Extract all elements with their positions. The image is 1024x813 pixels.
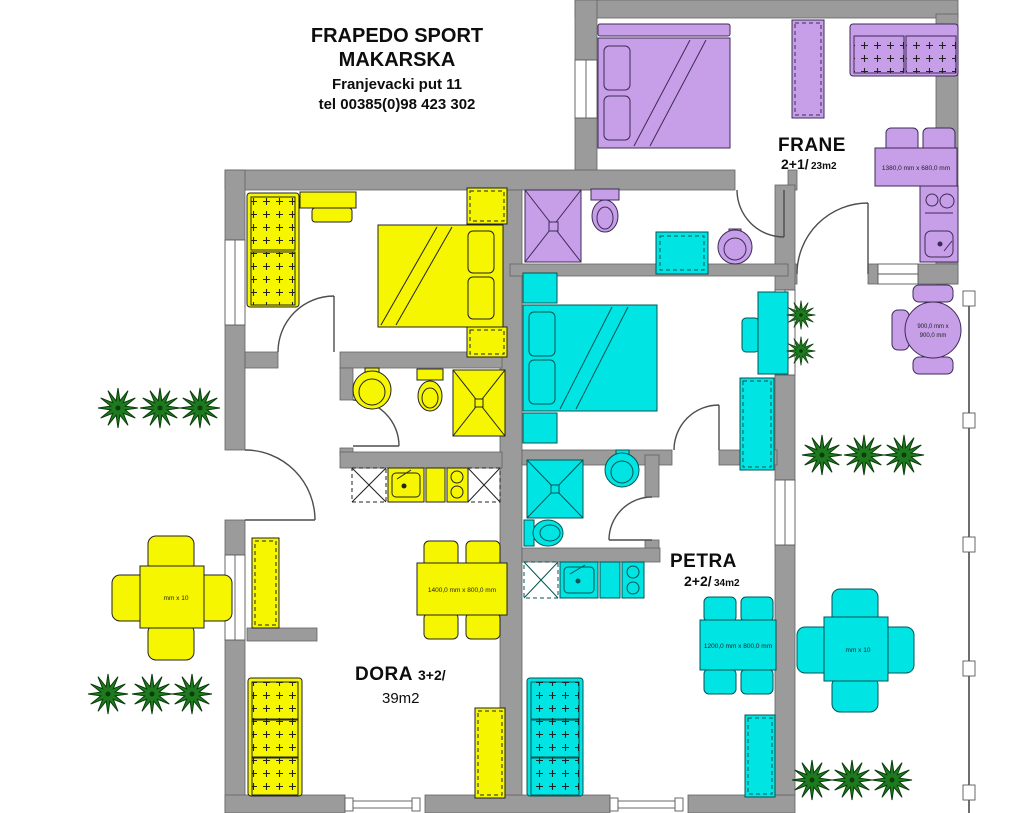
fence <box>963 291 975 813</box>
petra-label: PETRA <box>670 551 737 572</box>
bathroom-sink <box>353 368 391 409</box>
petra-area: 34m2 <box>714 578 740 589</box>
frane-area: 23m2 <box>811 161 837 172</box>
title-line3: Franjevacki put 11 <box>332 76 462 93</box>
wall-shelf <box>247 628 317 641</box>
wardrobe <box>252 538 279 628</box>
sofa <box>850 24 958 76</box>
frane-table-dimension: 1380,0 mm x 680,0 mm <box>882 165 950 172</box>
shower <box>453 370 505 436</box>
tree-icon <box>132 674 172 714</box>
double-bed <box>523 305 657 411</box>
wardrobe <box>475 708 505 798</box>
round-table-dimension-2: 900,0 mm <box>920 333 947 339</box>
round-table-dimension-1: 900,0 mm x <box>917 324 948 330</box>
wardrobe <box>745 715 775 797</box>
floor-plan-drawing: FRAPEDO SPORT MAKARSKA Franjevacki put 1… <box>0 0 1024 813</box>
cyan-terrace-table-dimension: mm x 10 <box>846 647 871 654</box>
title-line2: MAKARSKA <box>339 49 456 71</box>
petra-table-dimension: 1200,0 mm x 800,0 mm <box>704 643 772 650</box>
kitchen-row <box>352 468 500 502</box>
sofa <box>527 678 583 796</box>
kitchen-counter <box>920 186 958 262</box>
dresser <box>300 192 356 222</box>
tree-icon <box>832 760 872 800</box>
frane-capacity: 2+1/ <box>781 156 809 172</box>
nightstand <box>523 273 557 303</box>
bathroom-sink <box>718 229 752 264</box>
dora-table-dimension: 1400,0 mm x 800,0 mm <box>428 587 496 594</box>
tree-icon <box>884 435 924 475</box>
dora-area: 39m2 <box>382 690 420 707</box>
double-bed <box>598 24 730 148</box>
wardrobe <box>740 378 774 470</box>
tree-icon <box>88 674 128 714</box>
tree-icon <box>98 388 138 428</box>
tree-icon <box>844 435 884 475</box>
apartment-petra-furniture <box>523 273 914 797</box>
yellow-terrace-table-dimension: mm x 10 <box>164 595 189 602</box>
desk <box>742 292 788 374</box>
dining-table <box>875 128 957 186</box>
toilet <box>524 520 563 546</box>
toilet <box>417 369 443 411</box>
tree-icon <box>180 388 220 428</box>
shower <box>527 460 583 518</box>
dora-capacity: 3+2/ <box>418 667 446 683</box>
tree-icon <box>872 760 912 800</box>
nightstand <box>523 413 557 443</box>
double-bed <box>378 225 503 327</box>
sofa <box>248 678 302 796</box>
kitchen-row <box>524 562 644 598</box>
tree-icon <box>792 760 832 800</box>
title-line4: tel 00385(0)98 423 302 <box>319 96 476 113</box>
toilet <box>591 189 619 232</box>
tree-icon <box>172 674 212 714</box>
floor-plan-page: FRAPEDO SPORT MAKARSKA Franjevacki put 1… <box>0 0 1024 813</box>
shower <box>525 190 581 262</box>
sofa <box>247 193 299 307</box>
frane-label: FRANE <box>778 135 846 156</box>
tree-icon <box>802 435 842 475</box>
wardrobe <box>467 327 507 357</box>
tree-icon <box>140 388 180 428</box>
wardrobe <box>467 188 507 224</box>
title-line1: FRAPEDO SPORT <box>311 25 483 47</box>
wardrobe <box>792 20 824 118</box>
dora-label: DORA <box>355 664 413 685</box>
washing-machine <box>656 232 708 274</box>
petra-capacity: 2+2/ <box>684 573 712 589</box>
